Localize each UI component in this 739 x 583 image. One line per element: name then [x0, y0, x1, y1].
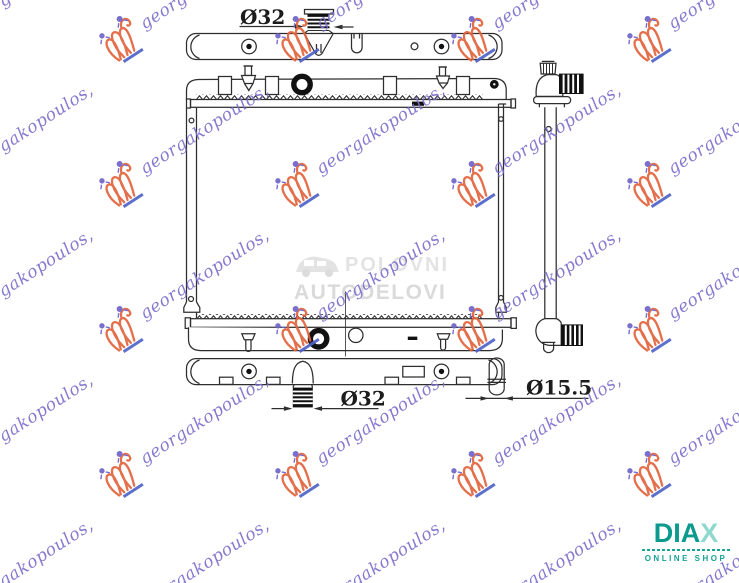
dimension-bottom-outlet: Ø32	[272, 387, 386, 411]
radiator-drawing-canvas: Ø32	[0, 0, 739, 583]
bottom-elbow	[536, 319, 561, 346]
right-bracket	[496, 104, 507, 318]
shop-logo-tagline: ONLINE SHOP	[636, 554, 736, 563]
filler-neck-ring	[294, 76, 310, 92]
dimension-label-bottom-outlet: Ø32	[341, 387, 386, 411]
shop-logo-main-text: DIA	[654, 518, 701, 548]
dimension-label-top-inlet: Ø32	[240, 5, 285, 29]
top-tank-body	[187, 34, 503, 60]
side-view-drawing	[534, 61, 584, 352]
dimension-label-drain-pipe: Ø15.5	[526, 376, 592, 400]
bottom-view-drawing: Ø32 Ø15.5	[187, 358, 593, 411]
top-pipe-cap	[305, 10, 334, 15]
bottom-tank-body	[187, 359, 503, 385]
dimension-top-inlet: Ø32	[240, 5, 354, 29]
shop-logo: DIAX ONLINE SHOP	[636, 520, 736, 563]
bottom-pipe-ribbed	[293, 388, 313, 408]
shop-logo-wordmark: DIAX	[636, 520, 736, 547]
radiator-cap	[540, 63, 556, 74]
shop-logo-divider	[642, 549, 730, 551]
front-view-drawing	[184, 66, 517, 357]
shop-logo-accent-letter: X	[700, 518, 718, 548]
outlet-ring	[310, 331, 326, 347]
top-view-drawing: Ø32	[187, 5, 503, 60]
side-column	[545, 107, 556, 319]
left-bracket	[184, 107, 200, 318]
product-image: POLOVNI AUTODELOVI	[0, 0, 739, 583]
